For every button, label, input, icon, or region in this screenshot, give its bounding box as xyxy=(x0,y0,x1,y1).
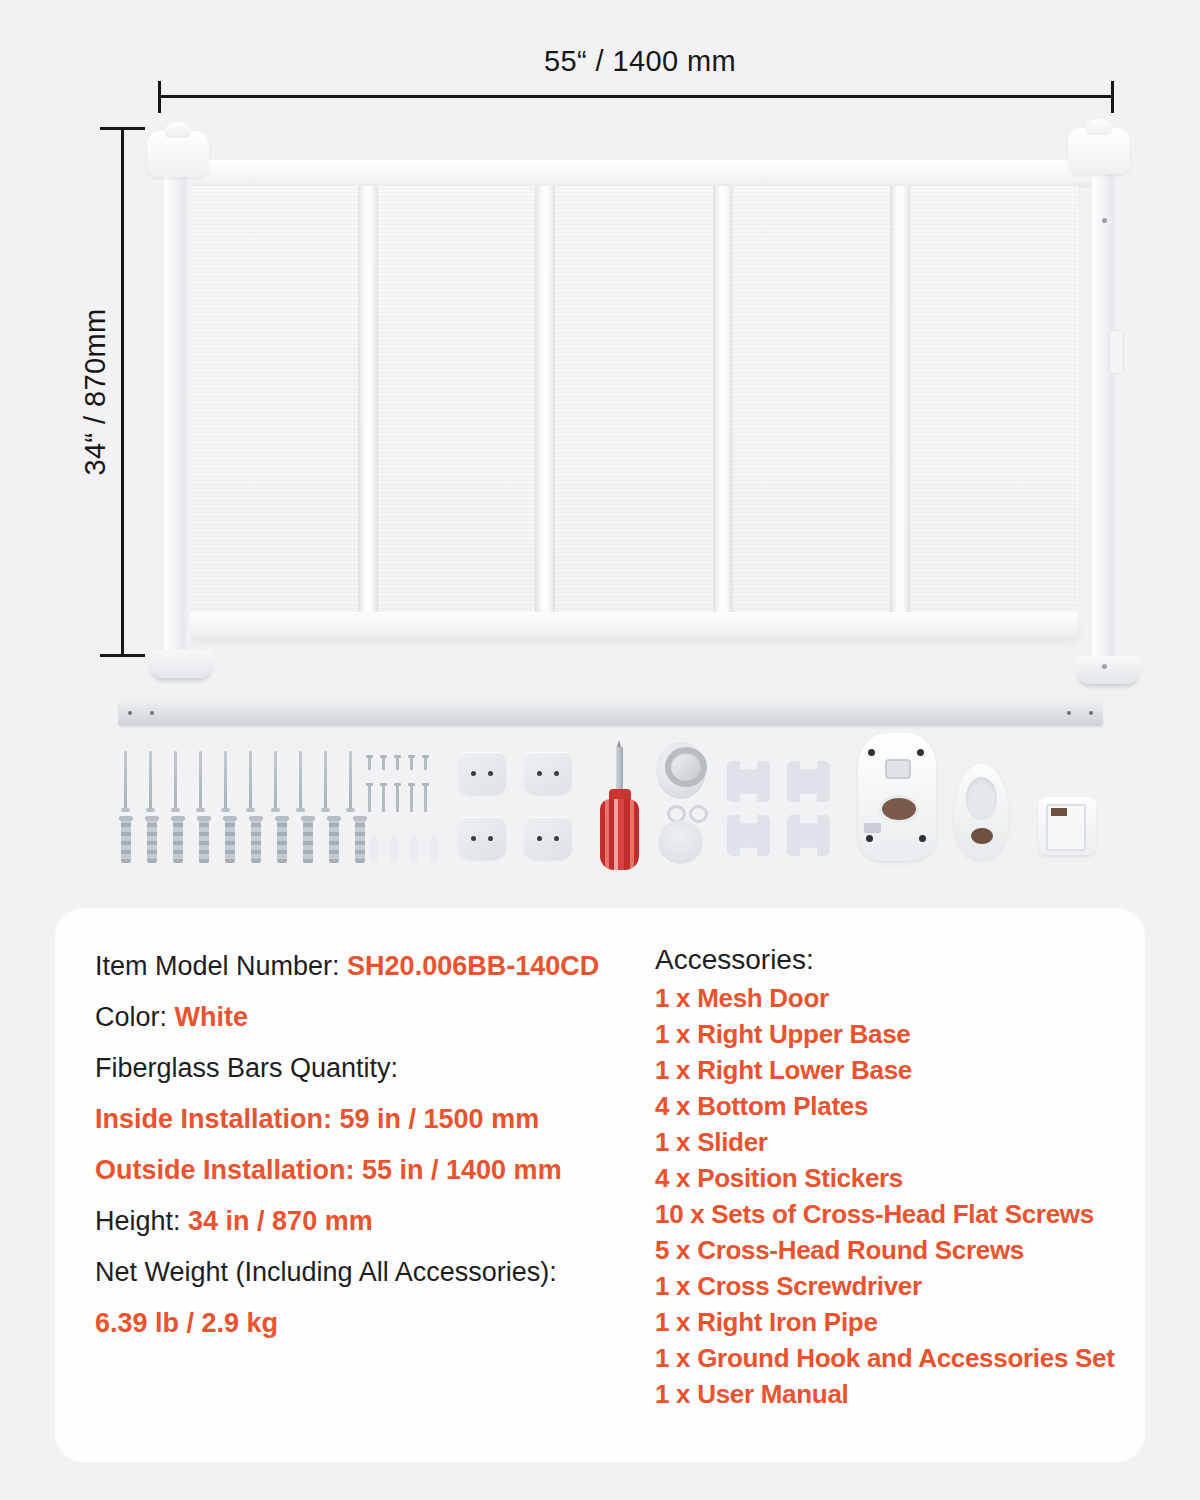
spec-line: Outside Installation: 55 in / 1400 mm xyxy=(95,1156,640,1185)
plastic-plug-icon xyxy=(370,836,378,861)
gate-right-cap xyxy=(1068,128,1130,174)
spec-line: Item Model Number: SH20.006BB-140CD xyxy=(95,952,640,981)
bottom-plate-icon xyxy=(458,817,506,860)
lower-base-recess xyxy=(966,777,997,820)
lower-base-pad xyxy=(971,828,993,844)
height-dimension-tick-top xyxy=(100,127,145,130)
spec-label: Color: xyxy=(95,1002,175,1032)
flat-screw-icon xyxy=(174,751,177,808)
round-screw-icon xyxy=(424,785,427,812)
flat-screw-icon xyxy=(124,751,127,808)
wall-anchor-icon xyxy=(251,818,261,863)
position-sticker-icon xyxy=(727,815,770,856)
flat-screw-icon xyxy=(324,751,327,808)
gate-mesh-panel xyxy=(190,186,1078,613)
ground-hook-set-illustration xyxy=(656,742,708,864)
spec-line: 6.39 lb / 2.9 kg xyxy=(95,1309,640,1338)
accessories-title: Accessories: xyxy=(655,942,1135,978)
round-screws-top-set xyxy=(368,757,427,770)
flat-screw-icon xyxy=(149,751,152,808)
gate-bottom-rail xyxy=(190,612,1078,637)
accessory-item: 1 x Slider xyxy=(655,1124,1135,1160)
cross-screwdriver-illustration xyxy=(600,745,640,871)
accessory-item: 1 x Right Lower Base xyxy=(655,1052,1135,1088)
spec-card: Item Model Number: SH20.006BB-140CD Colo… xyxy=(55,908,1145,1462)
gate-top-rail xyxy=(176,160,1096,186)
flat-screws-set xyxy=(124,751,352,808)
slider-pad xyxy=(1051,808,1067,816)
round-screw-icon xyxy=(368,785,371,812)
ground-hook-disc xyxy=(658,820,703,864)
accessory-item: 1 x Ground Hook and Accessories Set xyxy=(655,1340,1135,1376)
accessories-section: Accessories: 1 x Mesh Door 1 x Right Upp… xyxy=(655,942,1135,1412)
spec-label: Item Model Number: xyxy=(95,951,347,981)
spec-line: Net Weight (Including All Accessories): xyxy=(95,1258,640,1287)
gate-left-foot xyxy=(149,650,213,678)
wall-anchor-icon xyxy=(147,818,157,863)
flat-screw-icon xyxy=(249,751,252,808)
flat-screw-icon xyxy=(274,751,277,808)
bottom-plate-icon xyxy=(524,752,572,795)
mesh-divider xyxy=(890,186,910,613)
spec-value: 34 in / 870 mm xyxy=(188,1206,373,1236)
wall-anchor-icon xyxy=(303,818,313,863)
round-screw-icon xyxy=(424,757,427,770)
accessory-item: 1 x Right Upper Base xyxy=(655,1016,1135,1052)
plastic-plug-icon xyxy=(430,836,438,861)
screwdriver-handle xyxy=(600,799,639,870)
position-sticker-icon xyxy=(787,815,830,856)
round-screw-icon xyxy=(410,785,413,812)
iron-pipe-illustration xyxy=(118,700,1103,726)
spec-list: Item Model Number: SH20.006BB-140CD Colo… xyxy=(95,952,640,1360)
bottom-plate-icon xyxy=(524,817,572,860)
upper-base-slot xyxy=(885,759,911,779)
position-stickers-set xyxy=(727,761,830,856)
spec-label: Height: xyxy=(95,1206,188,1236)
position-sticker-icon xyxy=(727,761,770,802)
ground-hook-washer xyxy=(689,805,708,823)
ground-hook-ring xyxy=(665,747,707,787)
accessory-item: 5 x Cross-Head Round Screws xyxy=(655,1232,1135,1268)
accessory-item: 10 x Sets of Cross-Head Flat Screws xyxy=(655,1196,1135,1232)
spec-line: Fiberglass Bars Quantity: xyxy=(95,1054,640,1083)
post-screw-dot xyxy=(1102,218,1107,223)
spec-line: Color: White xyxy=(95,1003,640,1032)
wall-anchor-icon xyxy=(277,818,287,863)
accessory-item: 4 x Position Stickers xyxy=(655,1160,1135,1196)
wall-anchor-icon xyxy=(173,818,183,863)
plastic-plugs-set xyxy=(370,836,438,861)
spec-value: Outside Installation: 55 in / 1400 mm xyxy=(95,1155,562,1185)
product-spec-sheet: 55“ / 1400 mm 34“ / 870mm xyxy=(0,0,1200,1500)
width-dimension-tick-right xyxy=(1111,81,1114,113)
round-screw-icon xyxy=(410,757,413,770)
wall-anchor-icon xyxy=(121,818,131,863)
flat-screw-icon xyxy=(199,751,202,808)
right-lower-base-illustration xyxy=(954,764,1009,859)
accessory-item: 1 x Cross Screwdriver xyxy=(655,1268,1135,1304)
upper-base-clip xyxy=(864,823,881,833)
spec-value: 6.39 lb / 2.9 kg xyxy=(95,1308,278,1338)
wall-anchor-icon xyxy=(329,818,339,863)
width-dimension-line xyxy=(159,95,1114,98)
plastic-plug-icon xyxy=(390,836,398,861)
bottom-plate-icon xyxy=(458,752,506,795)
mesh-divider xyxy=(713,186,733,613)
round-screw-icon xyxy=(382,757,385,770)
gate-left-cap xyxy=(147,131,209,177)
spec-line: Height: 34 in / 870 mm xyxy=(95,1207,640,1236)
spec-value: Inside Installation: 59 in / 1500 mm xyxy=(95,1104,539,1134)
width-dimension-tick-left xyxy=(158,81,161,113)
accessory-item: 4 x Bottom Plates xyxy=(655,1088,1135,1124)
width-dimension-label: 55“ / 1400 mm xyxy=(340,45,940,78)
accessory-item: 1 x User Manual xyxy=(655,1376,1135,1412)
mesh-divider xyxy=(535,186,555,613)
wall-anchor-icon xyxy=(199,818,209,863)
height-dimension-tick-bottom xyxy=(100,654,145,657)
plastic-plug-icon xyxy=(410,836,418,861)
wall-anchor-icon xyxy=(355,818,365,863)
flat-screw-icon xyxy=(299,751,302,808)
round-screw-icon xyxy=(368,757,371,770)
height-dimension-line xyxy=(121,129,124,656)
gate-right-foot xyxy=(1076,656,1140,684)
flat-screw-icon xyxy=(224,751,227,808)
round-screws-set xyxy=(368,785,427,812)
bottom-plates-set xyxy=(458,752,572,860)
round-screw-icon xyxy=(396,785,399,812)
spec-label: Net Weight (Including All Accessories): xyxy=(95,1257,557,1287)
round-screw-icon xyxy=(396,757,399,770)
flat-screw-icon xyxy=(349,751,352,808)
accessory-item: 1 x Mesh Door xyxy=(655,980,1135,1016)
round-screw-icon xyxy=(382,785,385,812)
spec-value: White xyxy=(175,1002,249,1032)
mesh-divider xyxy=(358,186,378,613)
spec-label: Fiberglass Bars Quantity: xyxy=(95,1053,398,1083)
upper-base-pad xyxy=(879,795,919,823)
wall-anchor-icon xyxy=(225,818,235,863)
post-screw-dot xyxy=(1102,664,1107,669)
gate-left-post xyxy=(164,170,190,652)
right-upper-base-illustration xyxy=(858,733,936,861)
gate-latch xyxy=(1109,330,1124,374)
accessories-list: 1 x Mesh Door 1 x Right Upper Base 1 x R… xyxy=(655,980,1135,1412)
slider-illustration xyxy=(1038,797,1096,855)
position-sticker-icon xyxy=(787,761,830,802)
gate-right-post xyxy=(1092,172,1118,658)
spec-line: Inside Installation: 59 in / 1500 mm xyxy=(95,1105,640,1134)
wall-anchors-set xyxy=(121,818,365,863)
spec-value: SH20.006BB-140CD xyxy=(347,951,599,981)
accessory-item: 1 x Right Iron Pipe xyxy=(655,1304,1135,1340)
